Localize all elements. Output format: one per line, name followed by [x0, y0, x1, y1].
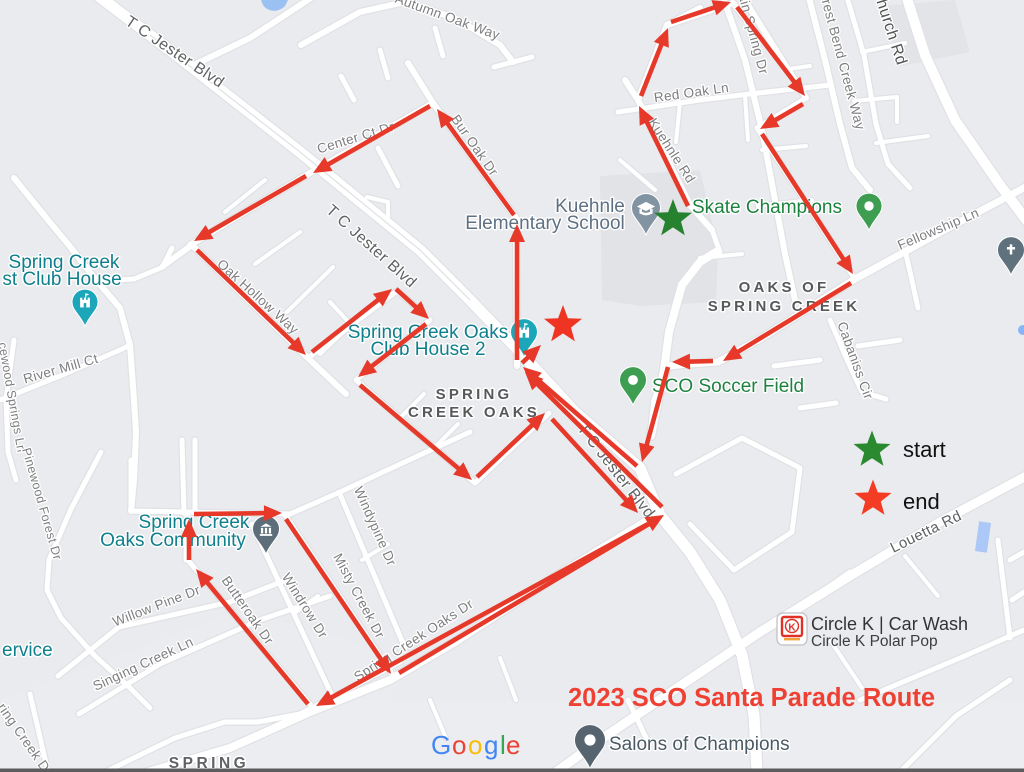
svg-text:OAKS OF: OAKS OF [739, 279, 830, 296]
svg-text:Skate Champions: Skate Champions [692, 197, 842, 218]
svg-text:SPRING CREEK: SPRING CREEK [708, 298, 861, 315]
svg-text:Circle K | Car Wash: Circle K | Car Wash [811, 614, 968, 634]
svg-text:ervice: ervice [2, 640, 53, 661]
svg-text:Elementary School: Elementary School [465, 213, 624, 234]
svg-text:g: g [484, 730, 498, 760]
svg-text:st Club House: st Club House [2, 269, 121, 290]
svg-text:Club House 2: Club House 2 [370, 339, 485, 360]
svg-text:Circle K Polar Pop: Circle K Polar Pop [811, 633, 938, 650]
svg-text:l: l [500, 730, 506, 760]
svg-text:e: e [506, 730, 520, 760]
svg-text:o: o [468, 730, 482, 760]
svg-text:Oaks Community: Oaks Community [100, 530, 246, 551]
svg-text:K: K [788, 623, 796, 634]
svg-text:o: o [452, 730, 466, 760]
svg-text:G: G [431, 730, 451, 760]
svg-text:start: start [903, 437, 946, 462]
svg-text:2023 SCO Santa Parade Route: 2023 SCO Santa Parade Route [568, 684, 935, 712]
svg-text:end: end [903, 489, 940, 514]
svg-text:SCO Soccer Field: SCO Soccer Field [652, 376, 804, 397]
svg-text:SPRING: SPRING [436, 386, 513, 403]
svg-text:CREEK OAKS: CREEK OAKS [408, 404, 540, 421]
svg-text:Salons of Champions: Salons of Champions [609, 734, 790, 755]
